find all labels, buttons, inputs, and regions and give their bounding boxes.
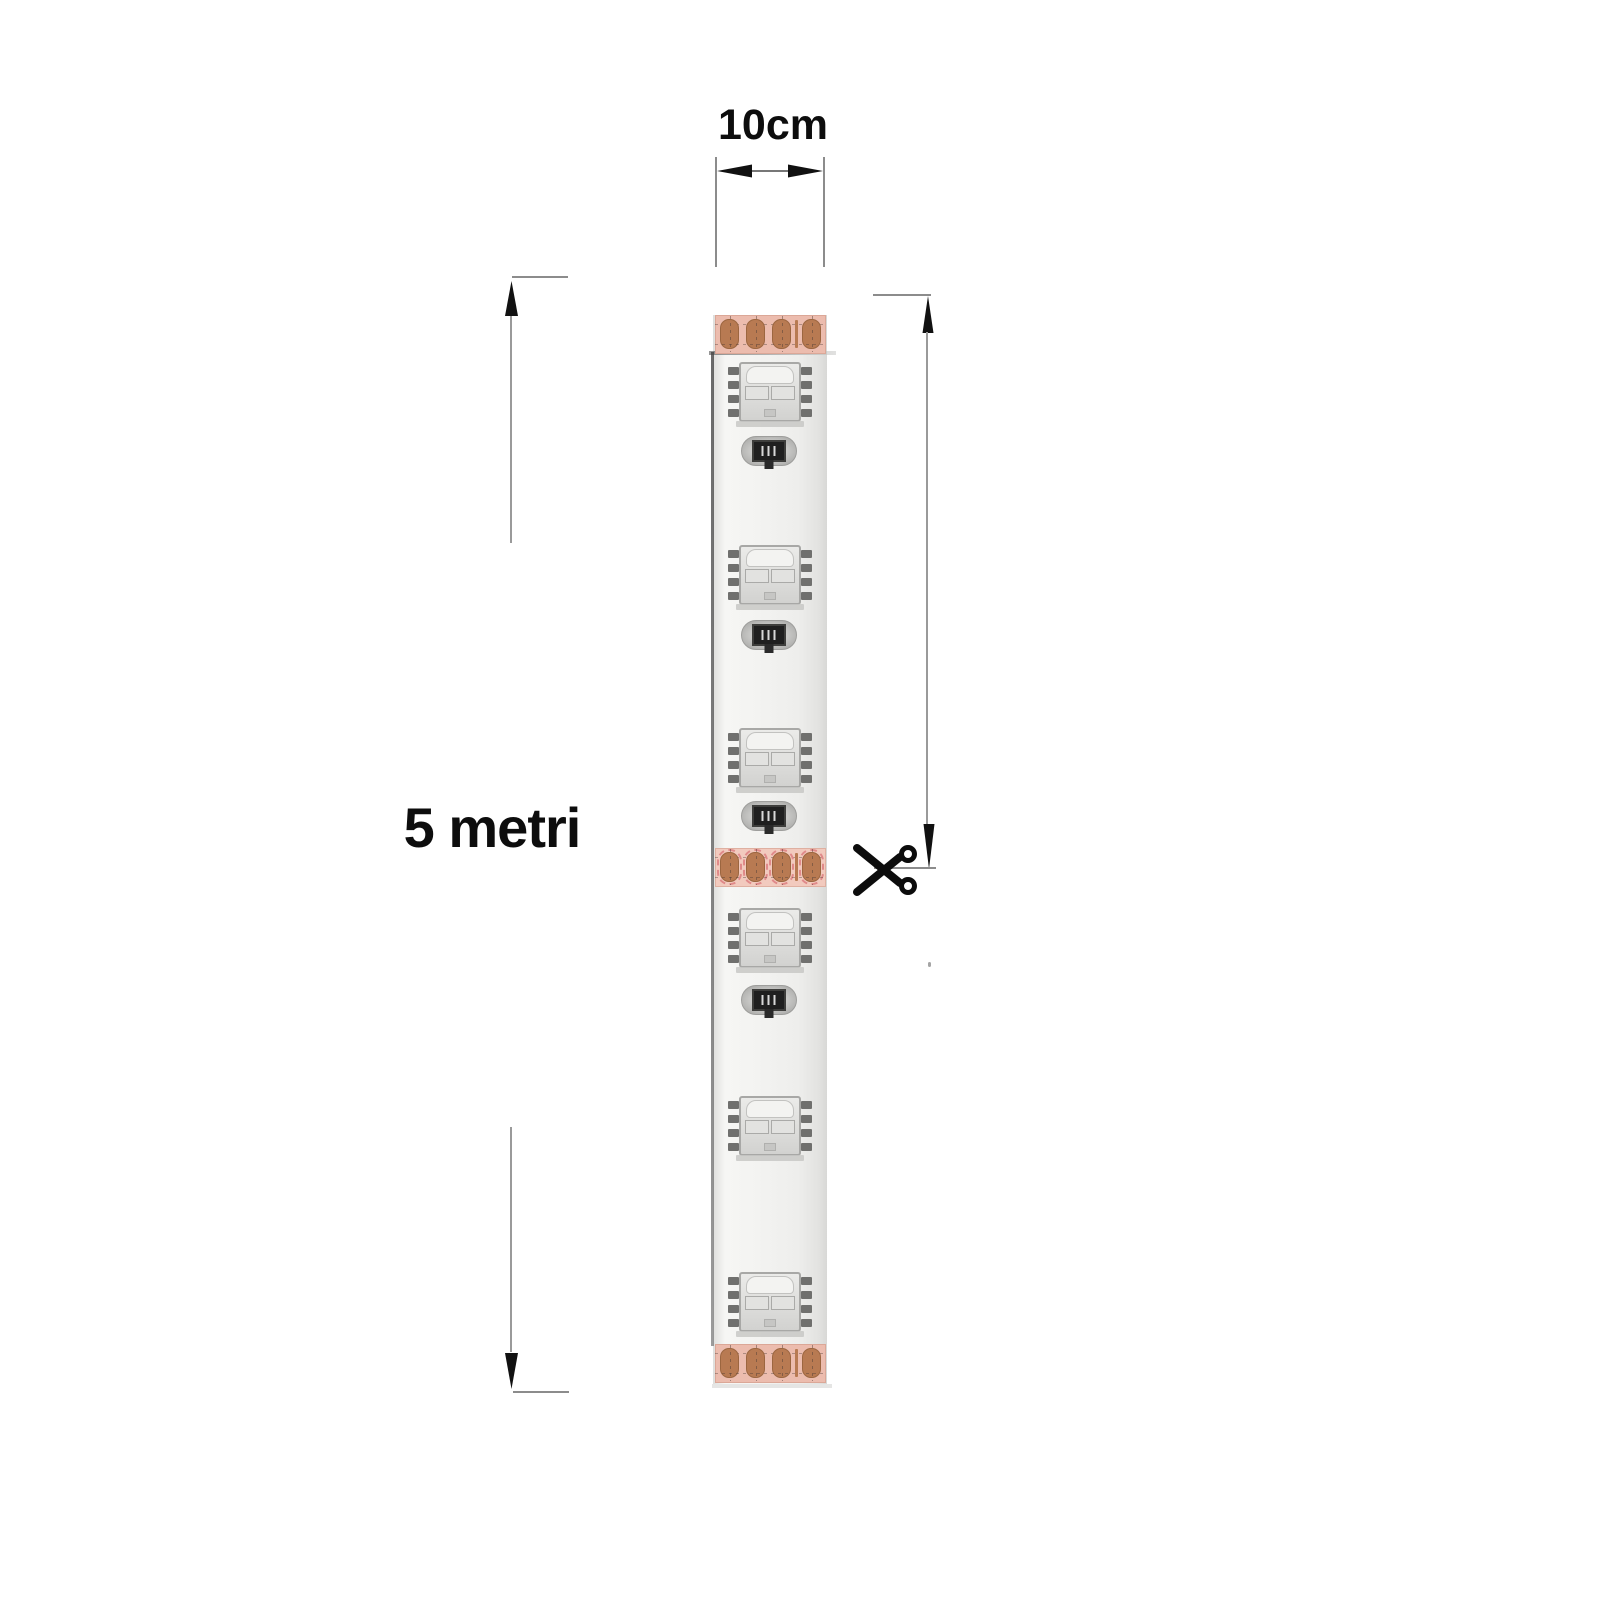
solder-pad (746, 1348, 765, 1378)
led-legs-left (728, 908, 739, 968)
led-legs-right (801, 908, 812, 968)
length-dimension-label: 5 metri (362, 795, 622, 860)
solder-pad (720, 319, 739, 349)
strip-left-edge (711, 352, 714, 1346)
led-legs-right (801, 1096, 812, 1156)
led-body (739, 908, 801, 968)
led-contacts (745, 1120, 795, 1134)
led-legs-right (801, 362, 812, 422)
led-legs-right (801, 1272, 812, 1332)
led-base-mark (764, 955, 776, 963)
solder-pad (746, 319, 765, 349)
led-contacts (745, 752, 795, 766)
segment-dim-line (926, 332, 928, 826)
led-contacts (745, 932, 795, 946)
solder-pad (772, 852, 791, 882)
solder-pad (802, 1348, 821, 1378)
arrow-down-icon (503, 1353, 520, 1390)
length-dim-tick-bottom (513, 1391, 569, 1393)
strip-shadow-bottom (712, 1384, 832, 1388)
arrow-up-icon (921, 296, 935, 334)
scissors-icon (853, 843, 923, 897)
resistor (741, 801, 797, 835)
pad-divider-sliver (795, 853, 798, 881)
led-body (739, 728, 801, 788)
resistor-chip (752, 624, 786, 646)
solder-pad (746, 852, 765, 882)
solder-pad (802, 319, 821, 349)
led-base-mark (764, 775, 776, 783)
led-base-mark (764, 592, 776, 600)
led-dome (746, 912, 794, 930)
artifact-speck (928, 962, 931, 967)
width-dimension-label: 10cm (673, 101, 873, 150)
pad-divider-sliver (795, 1349, 798, 1377)
led-legs-right (801, 728, 812, 788)
led-dome (746, 366, 794, 384)
led-base-mark (764, 1319, 776, 1327)
led-contacts (745, 569, 795, 583)
solder-pad-group (715, 315, 826, 354)
resistor-tail (765, 644, 774, 653)
solder-pad (720, 1348, 739, 1378)
led-module (728, 728, 812, 788)
led-dome (746, 1276, 794, 1294)
resistor-pad (741, 620, 797, 650)
led-body (739, 1096, 801, 1156)
arrow-up-icon (503, 281, 520, 317)
resistor-tail (765, 825, 774, 834)
resistor (741, 436, 797, 470)
led-legs-left (728, 362, 739, 422)
led-base-mark (764, 1143, 776, 1151)
led-contacts (745, 386, 795, 400)
led-module (728, 545, 812, 605)
resistor-tail (765, 1009, 774, 1018)
resistor-pad (741, 801, 797, 831)
led-dome (746, 732, 794, 750)
resistor-chip (752, 989, 786, 1011)
length-dim-tick-top (512, 276, 568, 278)
resistor-chip (752, 440, 786, 462)
led-body (739, 545, 801, 605)
pad-divider-sliver (795, 320, 798, 348)
led-module (728, 362, 812, 422)
diagram-canvas: 10cm 5 metri (0, 0, 1600, 1600)
double-arrow-horizontal-icon (712, 160, 828, 182)
resistor-pad (741, 436, 797, 466)
led-legs-left (728, 545, 739, 605)
led-module (728, 908, 812, 968)
resistor (741, 985, 797, 1019)
length-dim-line-lower (510, 1127, 512, 1352)
led-legs-left (728, 1096, 739, 1156)
solder-pad (772, 1348, 791, 1378)
led-module (728, 1096, 812, 1156)
arrow-down-icon (922, 824, 936, 870)
led-legs-left (728, 728, 739, 788)
solder-pad (802, 852, 821, 882)
solder-pad-group (715, 1344, 826, 1383)
resistor-tail (765, 460, 774, 469)
led-dome (746, 549, 794, 567)
solder-pad-group (715, 848, 826, 887)
resistor-pad (741, 985, 797, 1015)
led-contacts (745, 1296, 795, 1310)
led-base-mark (764, 409, 776, 417)
led-module (728, 1272, 812, 1332)
solder-pad (720, 852, 739, 882)
led-body (739, 362, 801, 422)
solder-pad (772, 319, 791, 349)
resistor (741, 620, 797, 654)
led-legs-right (801, 545, 812, 605)
length-dim-line-upper (510, 316, 512, 543)
led-dome (746, 1100, 794, 1118)
resistor-chip (752, 805, 786, 827)
led-body (739, 1272, 801, 1332)
led-legs-left (728, 1272, 739, 1332)
